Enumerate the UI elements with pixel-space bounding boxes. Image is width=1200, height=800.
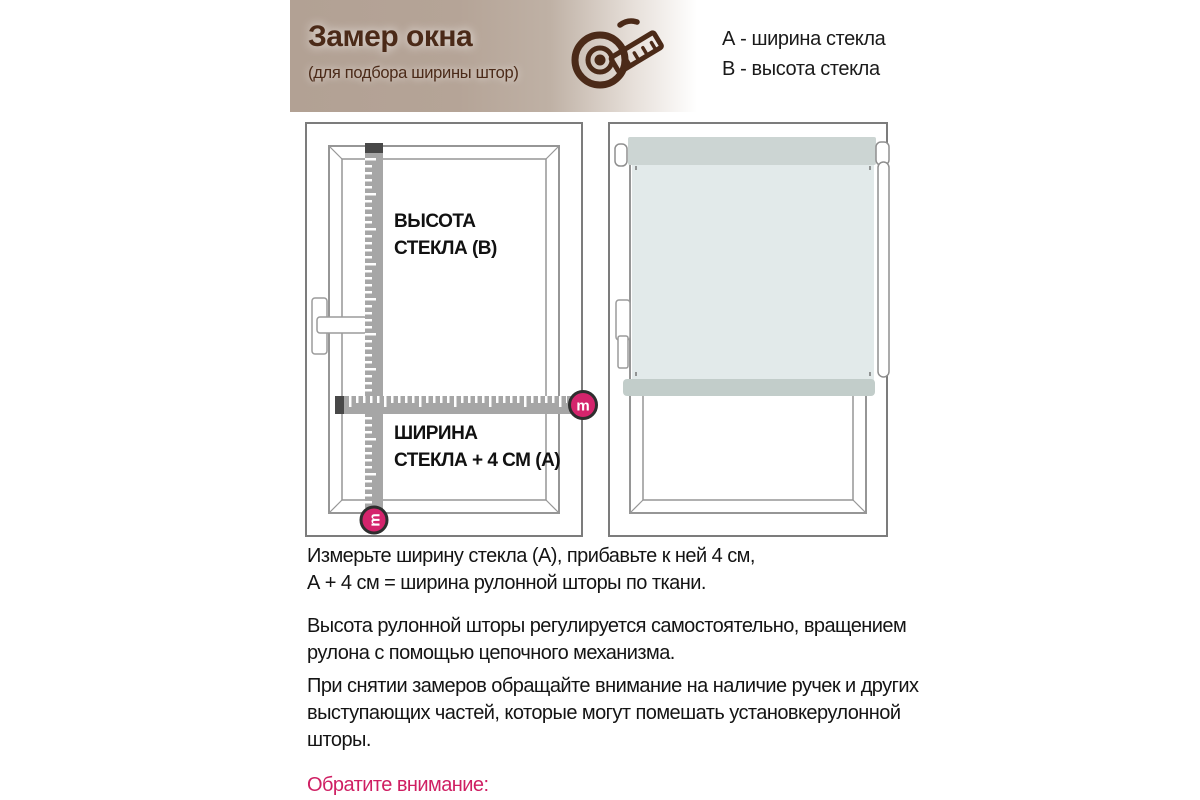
blind-bracket-left	[615, 144, 627, 166]
tape-measure-body-right: m	[570, 392, 597, 419]
legend-line-b: В - высота стекла	[722, 54, 885, 84]
window-with-roller-blind-diagram	[608, 122, 888, 537]
legend: А - ширина стекла В - высота стекла	[722, 24, 885, 84]
glass-height-label: ВЫСОТА СТЕКЛА (В)	[394, 208, 497, 262]
instruction-paragraph-3: При снятии замеров обращайте внимание на…	[307, 673, 967, 754]
measuring-tape-vertical	[365, 143, 383, 525]
attention-notice-title: Обратите внимание:	[307, 772, 967, 799]
blind-bottom-bar	[623, 379, 875, 396]
infographic-page: Замер окна (для подбора ширины штор) А -…	[0, 0, 1200, 800]
window-measurement-diagram: m m	[305, 122, 583, 537]
tape-badge-label: m	[576, 398, 589, 415]
legend-line-a: А - ширина стекла	[722, 24, 885, 54]
tape-badge-label: m	[367, 513, 384, 526]
page-title: Замер окна	[308, 20, 472, 54]
glass-width-label: ШИРИНА СТЕКЛА + 4 СМ (А)	[394, 420, 560, 474]
tape-end-cap	[365, 143, 383, 153]
blind-fabric	[632, 164, 874, 387]
blind-cassette	[628, 137, 876, 165]
window-handle	[616, 300, 630, 368]
tape-measure-body-bottom: m	[361, 507, 387, 533]
instruction-paragraph-2: Высота рулонной шторы регулируется самос…	[307, 613, 967, 667]
attention-notice: Обратите внимание: Размер рулонной шторы…	[307, 745, 967, 800]
blind-chain	[878, 162, 889, 377]
tape-end-cap	[335, 396, 344, 414]
page-subtitle: (для подбора ширины штор)	[308, 64, 519, 83]
instruction-paragraph-1: Измерьте ширину стекла (А), прибавьте к …	[307, 543, 967, 597]
tape-measure-icon	[563, 12, 671, 102]
measuring-tape-horizontal	[335, 396, 580, 414]
